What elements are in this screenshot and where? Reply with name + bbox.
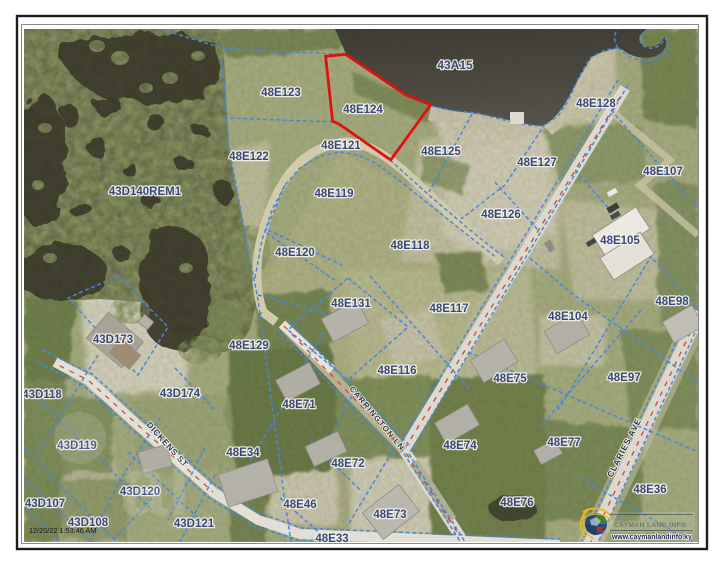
svg-text:48E74: 48E74 <box>443 440 477 452</box>
svg-text:48E97: 48E97 <box>607 372 640 384</box>
svg-text:48E71: 48E71 <box>282 399 316 411</box>
svg-text:48E121: 48E121 <box>321 140 361 152</box>
svg-text:43D107: 43D107 <box>25 498 65 510</box>
svg-text:48E104: 48E104 <box>548 311 588 323</box>
svg-text:48E128: 48E128 <box>576 98 616 110</box>
svg-text:48E118: 48E118 <box>390 240 430 252</box>
svg-text:48E76: 48E76 <box>500 497 533 509</box>
svg-text:48E123: 48E123 <box>261 87 301 99</box>
svg-text:12/20/22 1:53:46 AM: 12/20/22 1:53:46 AM <box>29 526 96 535</box>
svg-text:43D118: 43D118 <box>22 389 62 401</box>
svg-text:48E119: 48E119 <box>314 188 353 200</box>
svg-text:48E107: 48E107 <box>643 166 683 178</box>
svg-text:48E34: 48E34 <box>226 447 260 459</box>
svg-text:48E124: 48E124 <box>343 104 383 116</box>
svg-text:48E72: 48E72 <box>331 458 364 470</box>
svg-text:48E46: 48E46 <box>283 499 316 511</box>
svg-text:al: al <box>120 439 191 534</box>
svg-text:48E129: 48E129 <box>229 340 269 352</box>
svg-text:www.caymanlandinfo.ky: www.caymanlandinfo.ky <box>611 534 692 541</box>
svg-text:48E36: 48E36 <box>633 484 666 496</box>
svg-text:48E120: 48E120 <box>275 247 315 259</box>
svg-text:48E77: 48E77 <box>547 437 580 449</box>
svg-text:48E127: 48E127 <box>517 157 557 169</box>
svg-text:48E117: 48E117 <box>429 303 468 315</box>
svg-text:43D173: 43D173 <box>93 334 133 346</box>
svg-text:48E105: 48E105 <box>600 235 640 247</box>
svg-text:48E98: 48E98 <box>655 296 689 308</box>
svg-text:CAYMAN LAND INFO: CAYMAN LAND INFO <box>614 522 686 529</box>
svg-text:48E122: 48E122 <box>229 151 269 163</box>
svg-text:48E75: 48E75 <box>493 373 527 385</box>
svg-text:43A15: 43A15 <box>437 58 473 72</box>
svg-text:48E73: 48E73 <box>373 509 406 521</box>
svg-text:48E131: 48E131 <box>331 298 371 310</box>
svg-text:48E125: 48E125 <box>421 146 461 158</box>
svg-text:43D174: 43D174 <box>160 388 201 400</box>
svg-text:48E116: 48E116 <box>377 365 416 377</box>
svg-text:43D140REM1: 43D140REM1 <box>109 186 182 198</box>
svg-text:48E126: 48E126 <box>481 209 521 221</box>
